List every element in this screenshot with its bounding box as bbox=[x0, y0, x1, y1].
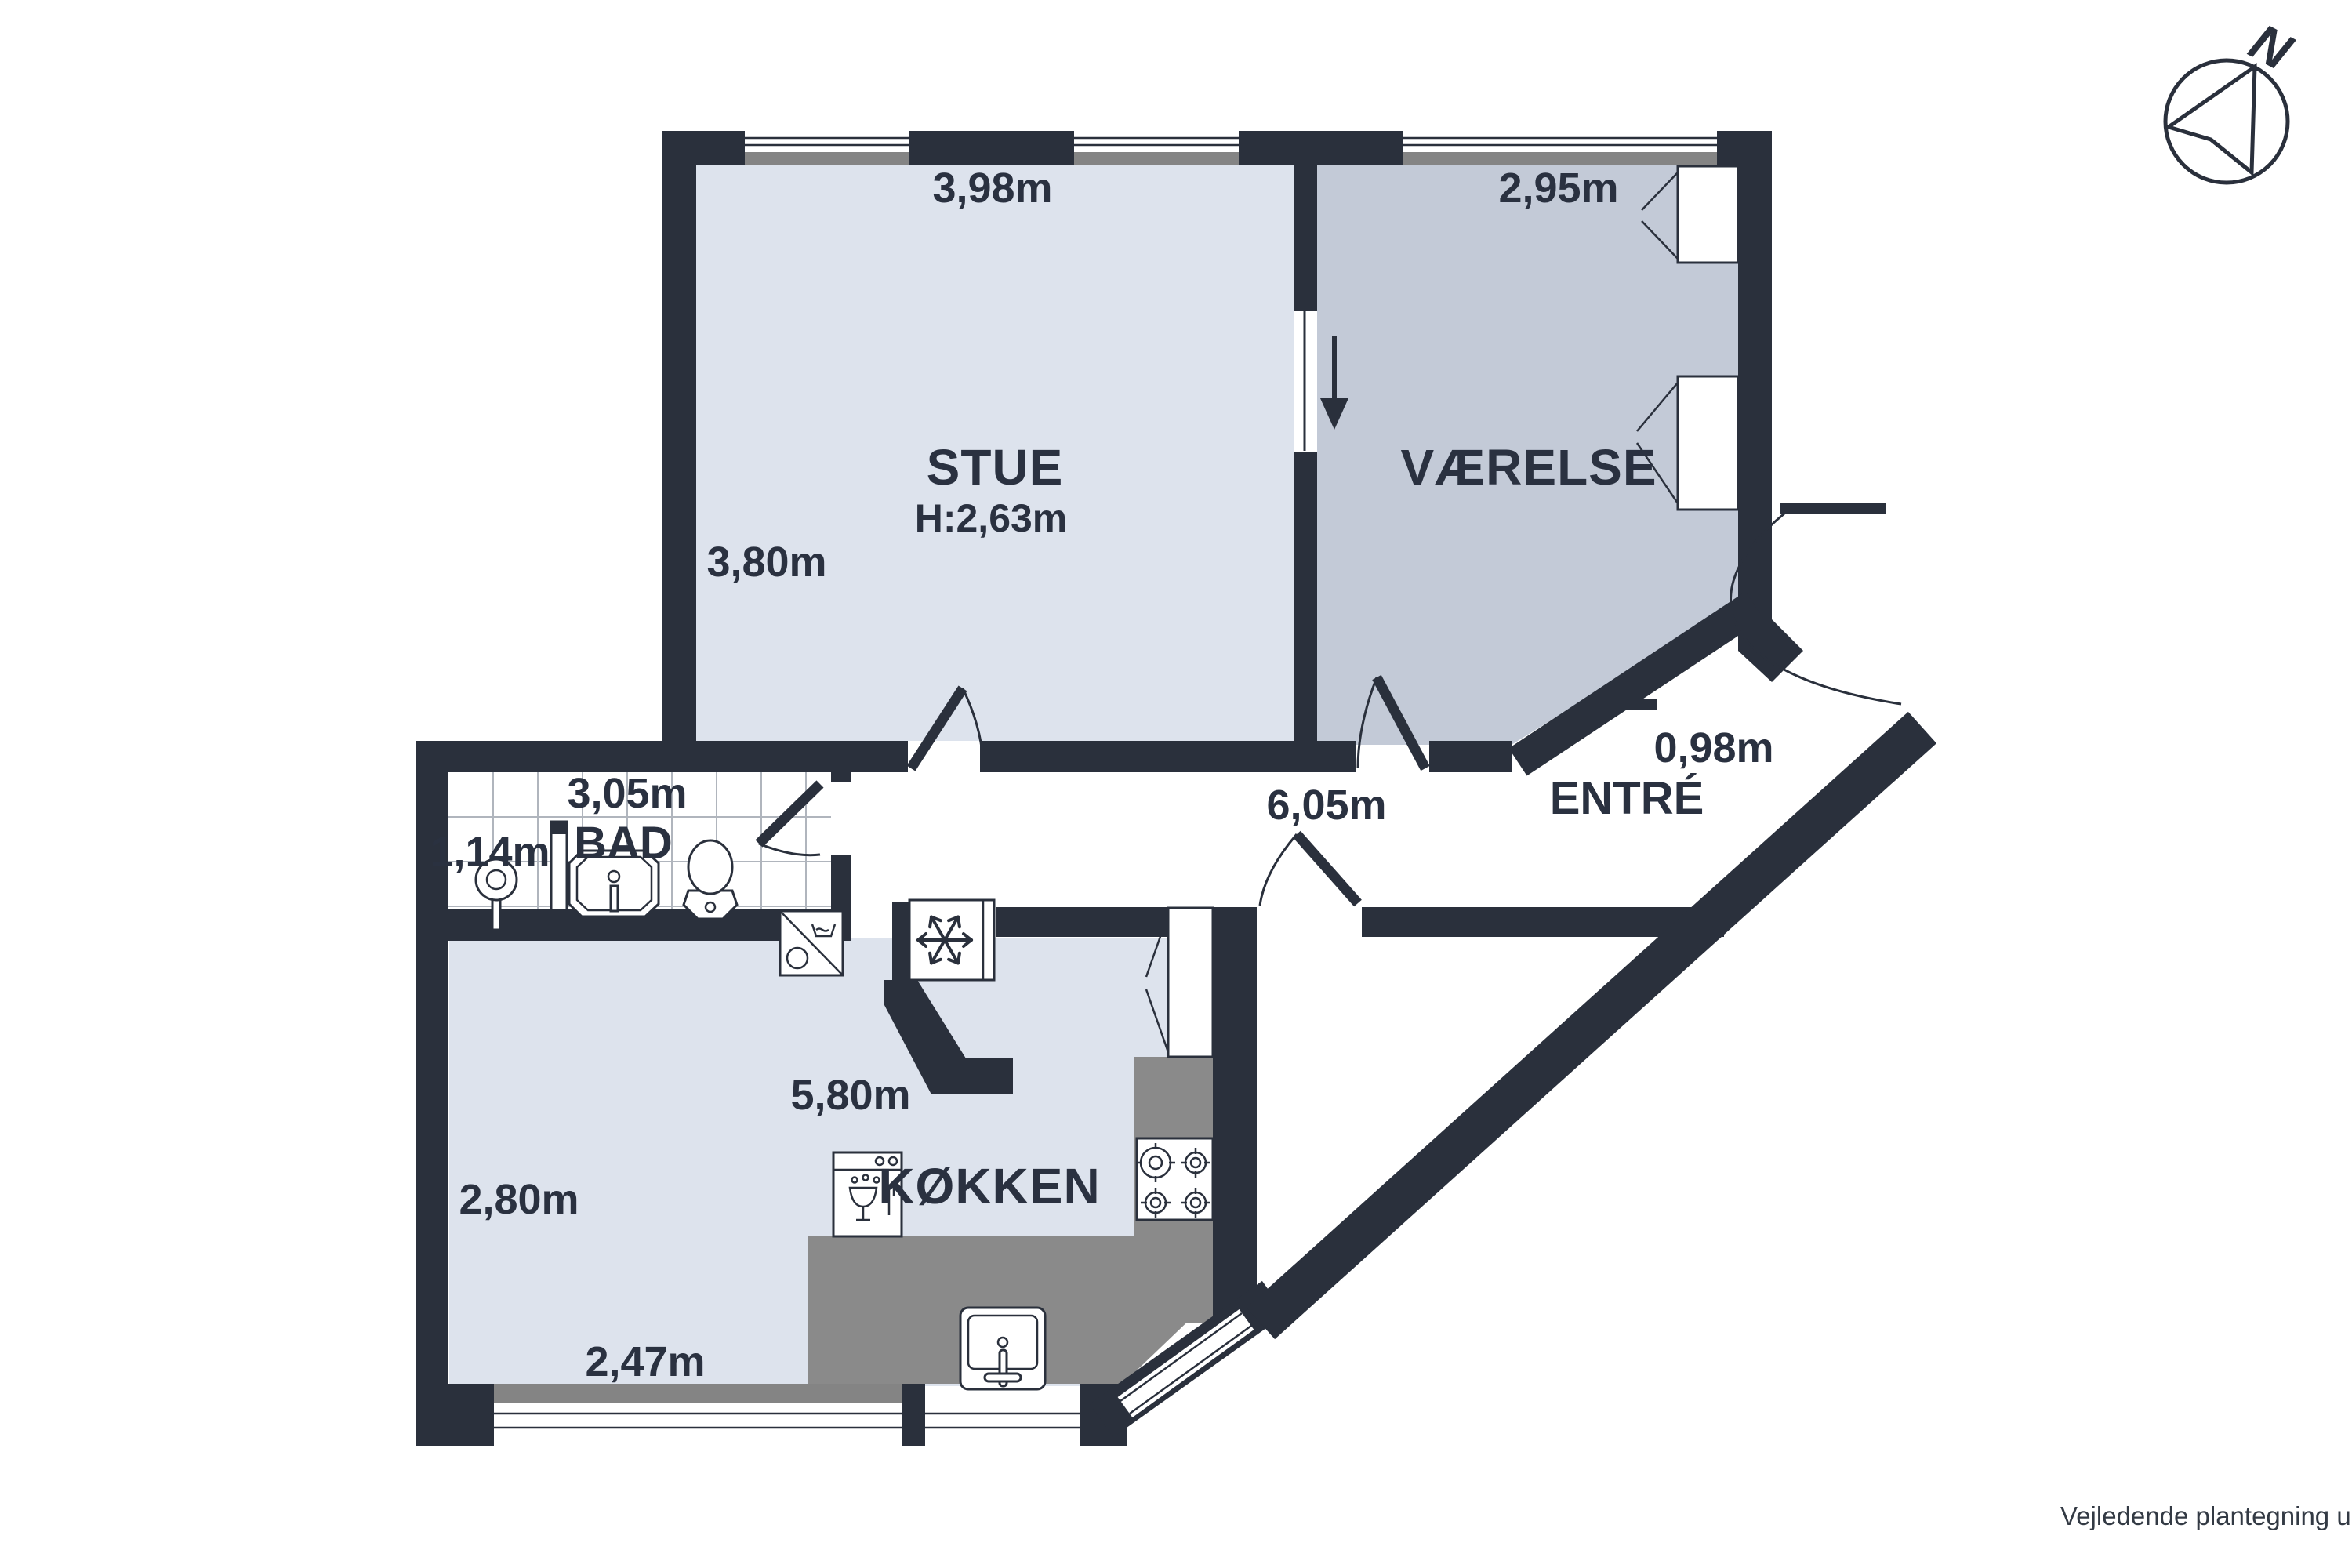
kitchen-sink-icon bbox=[960, 1308, 1045, 1389]
window-koekken-left bbox=[494, 1384, 902, 1439]
bad-width-dim: 3,05m bbox=[567, 770, 687, 817]
entre-name-label: ENTRÉ bbox=[1550, 773, 1704, 824]
toilet-icon bbox=[684, 840, 737, 919]
freezer-snowflake-icon bbox=[909, 900, 994, 980]
stove-hob-icon bbox=[1136, 1138, 1213, 1220]
stue-name-label: STUE bbox=[927, 439, 1064, 495]
vaerelse-width-dim: 2,95m bbox=[1498, 165, 1618, 212]
koekken-window-dim: 2,47m bbox=[585, 1338, 705, 1385]
floor-plan: 3,98m 2,95m STUE H:2,63m 3,80m VÆRELSE 3… bbox=[0, 0, 2352, 1568]
window-stue-2 bbox=[1074, 131, 1239, 165]
stue-width-dim: 3,98m bbox=[932, 165, 1052, 212]
window-stue-1 bbox=[745, 131, 909, 165]
koekken-depth-dim: 2,80m bbox=[459, 1176, 579, 1223]
shower-partition bbox=[551, 822, 567, 921]
vaerelse-name-label: VÆRELSE bbox=[1400, 439, 1657, 495]
window-vaerelse bbox=[1403, 131, 1717, 165]
koekken-door bbox=[1260, 834, 1358, 906]
bad-depth-dim: 1,14m bbox=[430, 829, 550, 876]
compass-north-icon: N bbox=[2165, 12, 2302, 183]
washing-machine-icon bbox=[780, 911, 843, 975]
koekken-name-label: KØKKEN bbox=[878, 1158, 1100, 1214]
entre-door-dim: 0,98m bbox=[1653, 724, 1773, 771]
stue-height-label: H:2,63m bbox=[915, 496, 1068, 540]
stue-depth-dim: 3,80m bbox=[706, 539, 826, 586]
disclaimer-text: Vejledende plantegning uden ansvar bbox=[2060, 1501, 2352, 1530]
bad-name-label: BAD bbox=[574, 818, 673, 869]
window-koekken-mid bbox=[925, 1403, 1080, 1439]
hall-length-dim: 6,05m bbox=[1266, 782, 1386, 829]
koekken-width-dim: 5,80m bbox=[790, 1072, 910, 1119]
